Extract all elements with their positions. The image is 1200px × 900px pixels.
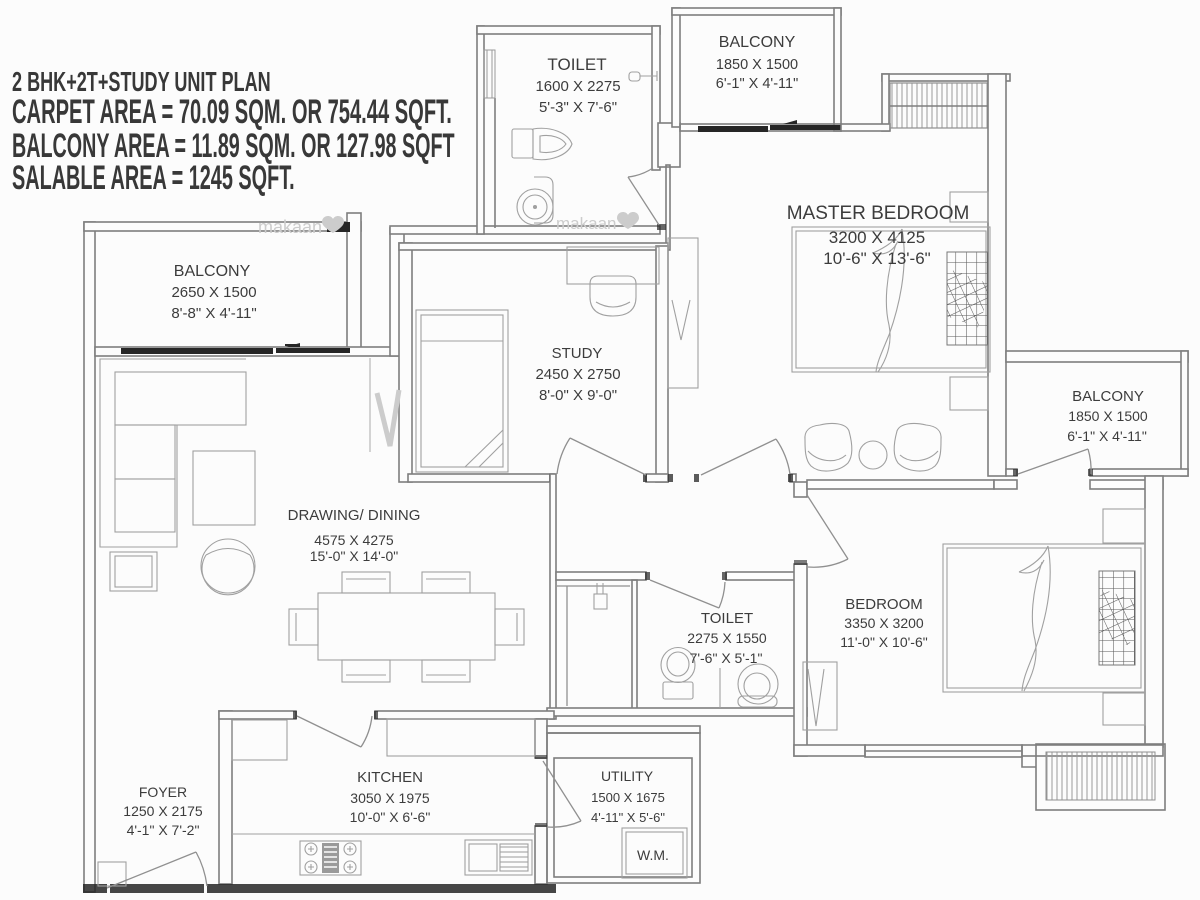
svg-text:2650 X 1500: 2650 X 1500 — [171, 284, 256, 301]
svg-text:1850 X 1500: 1850 X 1500 — [716, 57, 798, 73]
svg-text:3350 X 3200: 3350 X 3200 — [844, 615, 924, 631]
svg-text:8'-0" X 9'-0": 8'-0" X 9'-0" — [539, 387, 617, 404]
svg-text:BALCONY: BALCONY — [1072, 388, 1144, 405]
svg-text:4'-1" X 7'-2": 4'-1" X 7'-2" — [127, 822, 200, 838]
svg-text:5'-3" X 7'-6": 5'-3" X 7'-6" — [539, 99, 617, 116]
svg-text:BEDROOM: BEDROOM — [845, 596, 923, 613]
svg-text:2450 X 2750: 2450 X 2750 — [535, 366, 620, 383]
svg-text:makaan: makaan — [258, 217, 322, 237]
svg-text:8'-8" X 4'-11": 8'-8" X 4'-11" — [171, 305, 256, 322]
svg-text:BALCONY: BALCONY — [174, 263, 251, 280]
svg-text:3050 X 1975: 3050 X 1975 — [350, 790, 430, 806]
svg-text:MASTER BEDROOM: MASTER BEDROOM — [787, 203, 970, 224]
svg-text:15'-0" X 14'-0": 15'-0" X 14'-0" — [310, 548, 398, 564]
svg-text:W.M.: W.M. — [637, 847, 669, 863]
svg-text:TOILET: TOILET — [701, 610, 753, 627]
svg-text:10'-6" X 13'-6": 10'-6" X 13'-6" — [823, 249, 930, 268]
svg-text:makaan: makaan — [556, 214, 616, 233]
svg-text:6'-1" X 4'-11": 6'-1" X 4'-11" — [1067, 428, 1147, 444]
svg-text:DRAWING/ DINING: DRAWING/ DINING — [288, 507, 421, 524]
svg-text:10'-0" X 6'-6": 10'-0" X 6'-6" — [350, 809, 431, 825]
svg-text:1850 X 1500: 1850 X 1500 — [1068, 408, 1148, 424]
svg-text:11'-0" X 10'-6": 11'-0" X 10'-6" — [840, 634, 927, 650]
svg-text:BALCONY: BALCONY — [719, 34, 796, 51]
svg-text:4'-11" X 5'-6": 4'-11" X 5'-6" — [591, 810, 665, 825]
svg-text:3200 X 4125: 3200 X 4125 — [829, 228, 925, 247]
svg-text:FOYER: FOYER — [139, 784, 187, 800]
svg-text:2275 X 1550: 2275 X 1550 — [687, 630, 767, 646]
svg-text:KITCHEN: KITCHEN — [357, 769, 423, 786]
svg-text:STUDY: STUDY — [552, 345, 603, 362]
svg-text:UTILITY: UTILITY — [601, 768, 654, 784]
svg-text:1500 X 1675: 1500 X 1675 — [591, 790, 665, 805]
svg-text:1600 X 2275: 1600 X 2275 — [535, 78, 620, 95]
svg-text:1250 X 2175: 1250 X 2175 — [123, 803, 203, 819]
svg-text:7'-6" X 5'-1": 7'-6" X 5'-1" — [690, 650, 763, 666]
svg-text:6'-1" X 4'-11": 6'-1" X 4'-11" — [716, 76, 798, 92]
svg-text:TOILET: TOILET — [547, 55, 606, 74]
svg-text:4575 X 4275: 4575 X 4275 — [314, 532, 394, 548]
